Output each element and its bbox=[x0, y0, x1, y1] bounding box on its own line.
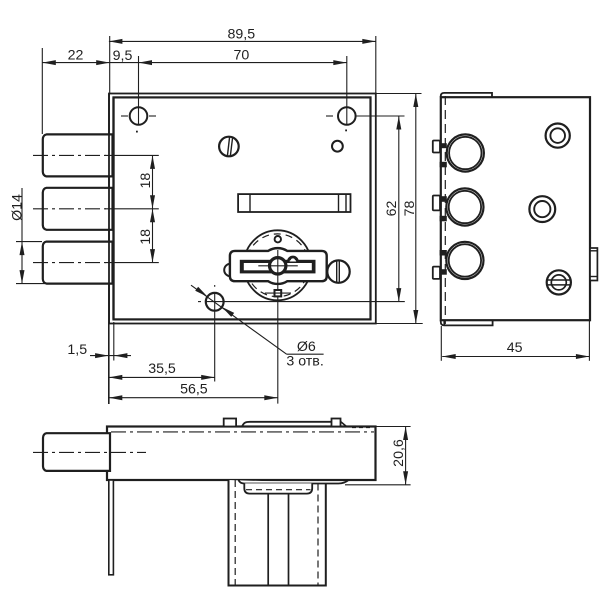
svg-text:89,5: 89,5 bbox=[227, 26, 255, 42]
svg-text:45: 45 bbox=[507, 340, 523, 356]
svg-text:20,6: 20,6 bbox=[391, 439, 407, 467]
svg-text:18: 18 bbox=[138, 229, 154, 245]
svg-text:Ø6: Ø6 bbox=[297, 339, 316, 355]
svg-text:Ø14: Ø14 bbox=[9, 194, 25, 221]
svg-text:62: 62 bbox=[384, 201, 400, 217]
svg-text:70: 70 bbox=[234, 47, 250, 63]
svg-text:3 отв.: 3 отв. bbox=[286, 354, 323, 370]
svg-text:9,5: 9,5 bbox=[113, 48, 133, 64]
svg-text:56,5: 56,5 bbox=[180, 381, 208, 397]
svg-text:78: 78 bbox=[402, 201, 418, 217]
svg-text:1,5: 1,5 bbox=[67, 342, 87, 358]
svg-text:18: 18 bbox=[138, 173, 154, 189]
svg-text:22: 22 bbox=[68, 47, 84, 63]
svg-text:35,5: 35,5 bbox=[148, 361, 176, 377]
